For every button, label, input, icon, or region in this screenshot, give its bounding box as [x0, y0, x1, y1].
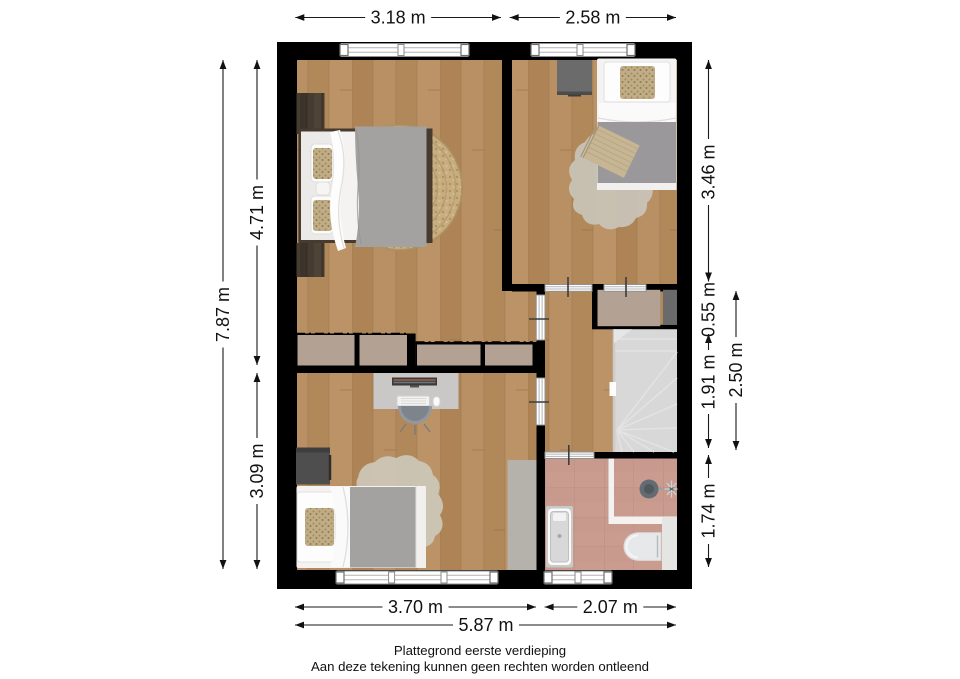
- svg-text:2.07 m: 2.07 m: [583, 597, 638, 617]
- svg-text:3.70 m: 3.70 m: [388, 597, 443, 617]
- svg-text:2.50 m: 2.50 m: [726, 342, 746, 397]
- svg-text:1.91 m: 1.91 m: [699, 354, 719, 409]
- svg-text:3.18 m: 3.18 m: [371, 8, 426, 28]
- svg-text:1.74 m: 1.74 m: [699, 483, 719, 538]
- svg-text:0.55 m: 0.55 m: [699, 282, 719, 337]
- svg-text:3.46 m: 3.46 m: [699, 144, 719, 199]
- svg-text:2.58 m: 2.58 m: [565, 8, 620, 28]
- svg-text:Plattegrond eerste verdieping: Plattegrond eerste verdieping: [394, 643, 566, 658]
- svg-text:5.87 m: 5.87 m: [458, 615, 513, 635]
- svg-text:4.71 m: 4.71 m: [247, 185, 267, 240]
- svg-text:7.87 m: 7.87 m: [213, 287, 233, 342]
- svg-text:Aan deze tekening kunnen geen: Aan deze tekening kunnen geen rechten wo…: [311, 659, 649, 674]
- svg-text:3.09 m: 3.09 m: [247, 443, 267, 498]
